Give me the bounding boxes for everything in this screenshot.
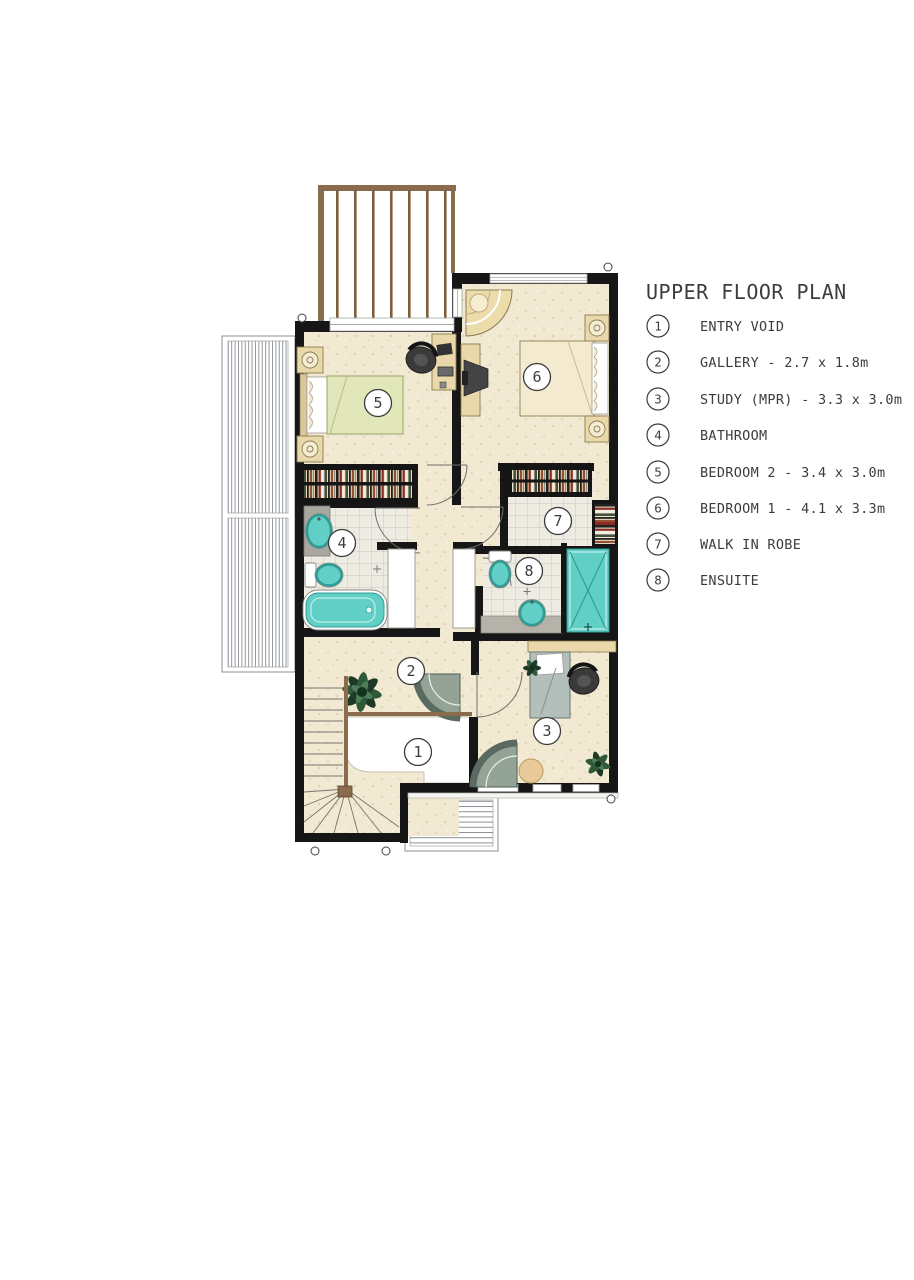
- svg-text:8: 8: [524, 562, 533, 580]
- room-marker-robe: 7: [545, 508, 572, 535]
- room-marker-entry-void: 1: [405, 739, 432, 766]
- floor-plan-page: 1 2 3 4 5 6 7 8 UPPE: [0, 0, 914, 1280]
- svg-text:3: 3: [654, 392, 662, 407]
- svg-text:7: 7: [553, 512, 562, 530]
- svg-text:2: 2: [406, 662, 415, 680]
- deck-slider-window: [330, 318, 454, 331]
- svg-text:6: 6: [654, 501, 662, 516]
- wardrobe-rack: [300, 464, 416, 504]
- legend: UPPER FLOOR PLAN 1 ENTRY VOID 2 GALLERY …: [646, 280, 902, 591]
- legend-label: STUDY (MPR) - 3.3 x 3.0m: [700, 392, 902, 408]
- svg-text:6: 6: [532, 368, 541, 386]
- room-marker-bedroom2: 5: [365, 390, 392, 417]
- hall-cupboard-left: [388, 549, 415, 628]
- shower: [561, 543, 609, 633]
- deck-left-beam: [318, 185, 324, 321]
- svg-text:2: 2: [654, 355, 662, 370]
- left-awning: [222, 336, 295, 672]
- legend-item-8: 8 ENSUITE: [647, 569, 759, 591]
- legend-item-3: 3 STUDY (MPR) - 3.3 x 3.0m: [647, 388, 902, 410]
- robe-rack-top: [508, 465, 592, 497]
- room-marker-ensuite: 8: [516, 558, 543, 585]
- legend-label: ENTRY VOID: [700, 319, 784, 335]
- room-marker-study: 3: [534, 718, 561, 745]
- svg-text:3: 3: [542, 722, 551, 740]
- room-marker-bedroom1: 6: [524, 364, 551, 391]
- bedroom1-side-window: [453, 289, 462, 317]
- nightstand: [585, 416, 609, 442]
- study-shelf: [528, 641, 616, 652]
- svg-text:4: 4: [654, 428, 662, 443]
- bathtub: [303, 590, 387, 630]
- toilet: [305, 563, 343, 587]
- legend-label: BEDROOM 1 - 4.1 x 3.3m: [700, 501, 885, 517]
- robe-rack-side: [592, 500, 618, 548]
- bedroom1-window: [490, 274, 587, 283]
- floor-plan-canvas: 1 2 3 4 5 6 7 8 UPPE: [0, 0, 914, 1280]
- svg-text:7: 7: [654, 537, 662, 552]
- legend-item-6: 6 BEDROOM 1 - 4.1 x 3.3m: [647, 497, 885, 519]
- legend-item-5: 5 BEDROOM 2 - 3.4 x 3.0m: [647, 461, 885, 483]
- nightstand: [297, 436, 323, 462]
- window-sill: [408, 793, 618, 798]
- page-title: UPPER FLOOR PLAN: [646, 280, 847, 304]
- legend-item-1: 1 ENTRY VOID: [647, 315, 784, 337]
- hall-cupboard-right: [453, 549, 475, 628]
- nightstand: [585, 315, 609, 341]
- room-marker-gallery: 2: [398, 658, 425, 685]
- legend-label: WALK IN ROBE: [700, 537, 801, 553]
- deck-top-beam: [318, 185, 456, 191]
- ottoman: [519, 759, 543, 783]
- legend-label: BATHROOM: [700, 428, 767, 444]
- deck-pergola: [318, 185, 456, 321]
- svg-text:5: 5: [654, 465, 662, 480]
- legend-item-4: 4 BATHROOM: [647, 424, 767, 446]
- svg-text:4: 4: [337, 534, 346, 552]
- legend-item-7: 7 WALK IN ROBE: [647, 533, 801, 555]
- ensuite-toilet: [489, 551, 511, 588]
- deck-right-beam: [451, 185, 455, 273]
- svg-text:1: 1: [654, 319, 662, 334]
- svg-text:8: 8: [654, 573, 662, 588]
- ensuite-basin: [519, 600, 546, 627]
- legend-item-2: 2 GALLERY - 2.7 x 1.8m: [647, 351, 869, 373]
- legend-label: ENSUITE: [700, 573, 759, 589]
- svg-text:5: 5: [373, 394, 382, 412]
- deck-floor: [322, 190, 454, 318]
- nightstand: [297, 347, 323, 373]
- legend-label: GALLERY - 2.7 x 1.8m: [700, 355, 869, 371]
- room-marker-bathroom: 4: [329, 530, 356, 557]
- legend-label: BEDROOM 2 - 3.4 x 3.0m: [700, 465, 885, 481]
- svg-text:1: 1: [413, 743, 422, 761]
